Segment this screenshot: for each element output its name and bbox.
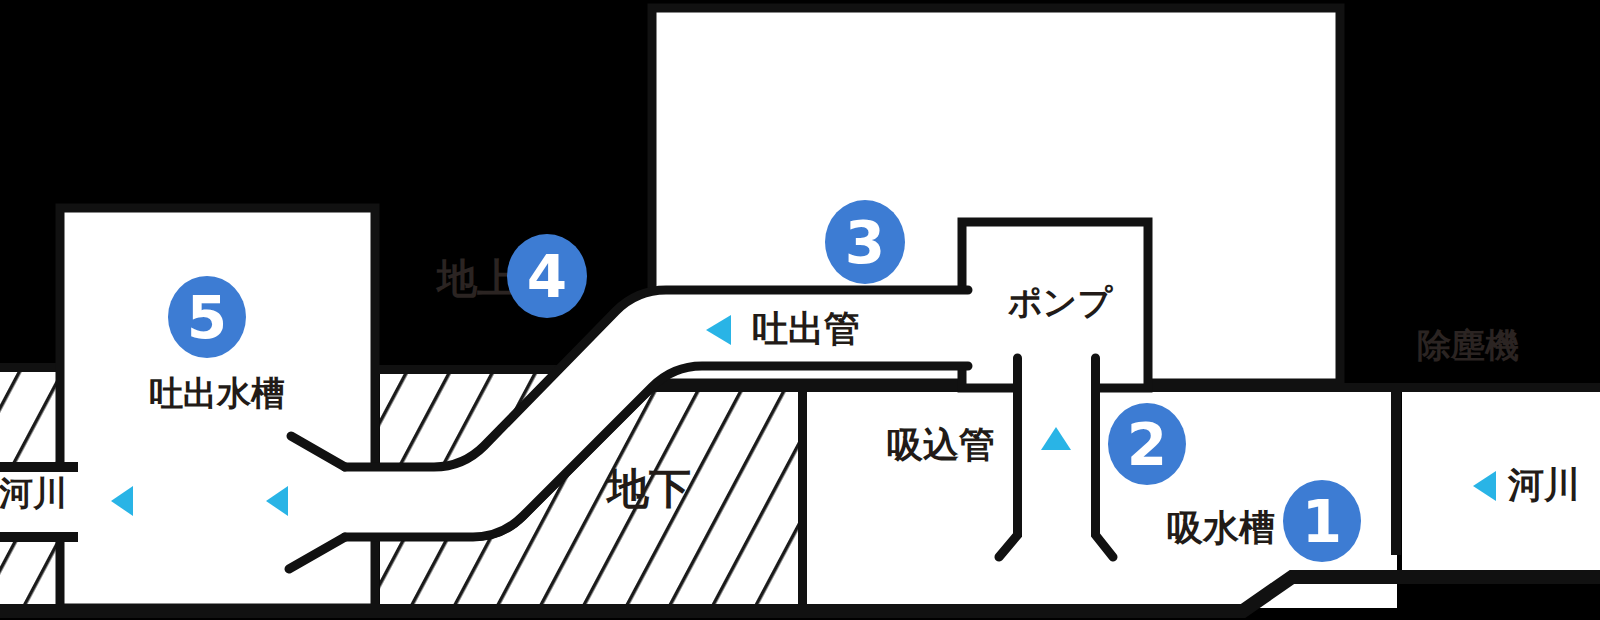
intake-wall [1391,387,1401,555]
underground-label: 地下 [605,465,691,512]
marker-3: 3 [825,200,905,284]
river-left-bottom-line [0,532,78,542]
river-left-label: 河川 [0,474,67,512]
pump-label: ポンプ [1008,283,1114,321]
ground-surface-line-mid [375,365,565,374]
suction-tank-label: 吸水槽 [1167,507,1275,548]
discharge-pipe-label: 吐出管 [752,308,860,349]
suction-pipe-label: 吸込管 [887,424,995,465]
marker-3-number: 3 [845,209,885,277]
marker-1-number: 1 [1302,488,1342,556]
marker-4-number: 4 [527,243,567,311]
river-left-top-line [0,462,78,472]
pump-floor-opening [1022,379,1091,397]
above-ground-label: 地上 [435,256,517,300]
ground-line-b [1098,383,1600,392]
marker-2: 2 [1108,403,1186,485]
intake-screen-label: 除塵機 [1417,326,1519,364]
ground-line-a [640,383,1013,392]
marker-5: 5 [168,276,246,358]
discharge-tank-label: 吐出水槽 [149,374,285,412]
marker-4: 4 [507,234,587,318]
marker-5-number: 5 [187,284,227,352]
pump-diagram: 吐出水槽 河川 地上 地下 吐出管 ポンプ 吸込管 吸水槽 河川 除塵機 1 2… [0,0,1600,620]
marker-1: 1 [1283,480,1361,562]
pump-diagram-canvas: 吐出水槽 河川 地上 地下 吐出管 ポンプ 吸込管 吸水槽 河川 除塵機 1 2… [0,0,1600,620]
ground-surface-line-left [0,363,64,372]
river-right-label: 河川 [1507,464,1580,505]
suction-tank-left-wall [798,392,807,608]
marker-2-number: 2 [1127,411,1167,479]
